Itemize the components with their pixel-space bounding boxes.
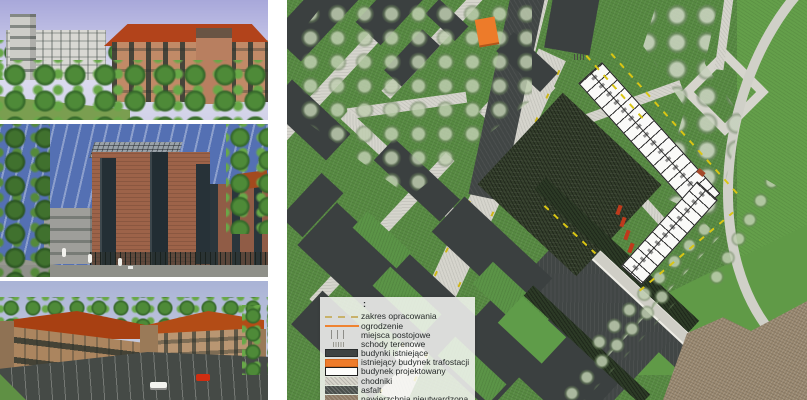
foreground-trees — [0, 60, 268, 120]
trees-right — [242, 305, 268, 375]
legend-item: ogrodzenie — [325, 321, 471, 330]
legend: : zakres opracowaniaogrodzeniemiejsca po… — [320, 297, 475, 400]
legend-swatch-parking-lines — [325, 330, 361, 339]
legend-swatch-texture-light — [325, 377, 358, 385]
terrain-steps — [574, 54, 586, 60]
legend-item: budynek projektowany — [325, 367, 471, 376]
car-red — [196, 374, 210, 381]
legend-item: nawierzchnia nieutwardzona — [325, 395, 471, 400]
trees-left — [0, 124, 50, 277]
glass-strip — [100, 158, 116, 266]
renderings-column — [0, 0, 268, 400]
person-figure — [88, 254, 92, 263]
rendering-view-parking — [0, 281, 268, 400]
legend-label: ogrodzenie — [361, 322, 403, 331]
site-plan-map: : zakres opracowaniaogrodzeniemiejsca po… — [287, 0, 807, 400]
car-white — [150, 382, 167, 390]
rendering-view-entrance — [0, 124, 268, 277]
legend-label: chodniki — [361, 377, 392, 386]
legend-swatch-fill-dark — [325, 349, 358, 357]
rendering-view-north — [0, 0, 268, 120]
person-figure — [118, 258, 122, 266]
dog-figure — [128, 266, 133, 269]
legend-label: budynek projektowany — [361, 367, 446, 376]
legend-swatch-dashed-line — [325, 312, 361, 321]
legend-swatch-fill-white — [325, 367, 358, 376]
legend-swatch-fill-orange — [325, 359, 358, 367]
legend-title: : — [325, 299, 471, 312]
person-figure — [62, 248, 66, 257]
fence-dash — [623, 230, 630, 241]
glass-strip — [196, 164, 210, 264]
legend-item: zakres opracowania — [325, 312, 471, 321]
legend-label: miejsca postojowe — [361, 331, 430, 340]
legend-label: nawierzchnia nieutwardzona — [361, 395, 468, 400]
legend-item: chodniki — [325, 376, 471, 385]
glass-strip — [150, 152, 168, 266]
legend-label: zakres opracowania — [361, 312, 437, 321]
legend-rows: zakres opracowaniaogrodzeniemiejsca post… — [325, 312, 471, 400]
presentation-board: : zakres opracowaniaogrodzeniemiejsca po… — [0, 0, 807, 400]
legend-swatch-steps — [325, 340, 361, 349]
legend-swatch-texture-brown — [325, 395, 358, 400]
legend-swatch-texture-asphalt — [325, 386, 358, 394]
legend-swatch-solid-line — [325, 321, 361, 330]
existing-building — [544, 0, 600, 56]
trees-right — [226, 124, 268, 234]
